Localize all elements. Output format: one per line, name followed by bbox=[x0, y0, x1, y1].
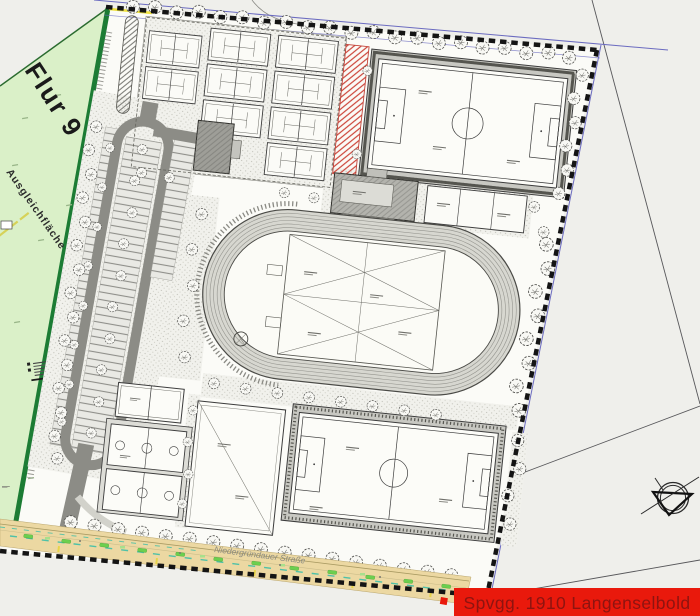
site-plan-page: Flur 9 Ausgleichfläche bbox=[0, 0, 700, 616]
tennis-court bbox=[204, 64, 267, 102]
tennis-court bbox=[264, 143, 327, 181]
banner-label: Spvgg. 1910 Langenselbold bbox=[464, 593, 691, 613]
soccer-field-north bbox=[358, 49, 576, 198]
soccer-field-south bbox=[281, 404, 506, 543]
tennis-court bbox=[146, 31, 202, 68]
title-banner: Spvgg. 1910 Langenselbold bbox=[440, 588, 700, 616]
legend-box bbox=[1, 221, 12, 229]
tennis-court bbox=[272, 71, 335, 109]
tennis-court bbox=[142, 67, 198, 104]
tennis-court bbox=[275, 35, 338, 73]
tennis-court bbox=[268, 107, 331, 145]
banner-chip bbox=[440, 597, 448, 605]
site-plan-drawing: Flur 9 Ausgleichfläche bbox=[0, 0, 700, 616]
training-field bbox=[185, 401, 286, 536]
tennis-court bbox=[208, 28, 271, 66]
small-court bbox=[115, 382, 184, 423]
